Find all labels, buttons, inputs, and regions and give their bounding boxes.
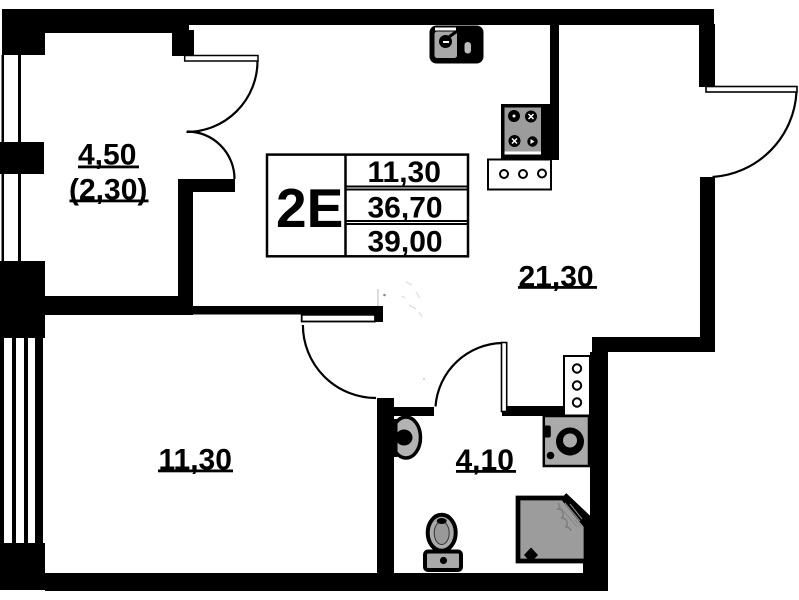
svg-text:2E: 2E bbox=[276, 177, 343, 239]
svg-text:11,30: 11,30 bbox=[368, 156, 441, 189]
svg-text:36,70: 36,70 bbox=[368, 192, 443, 225]
svg-text:39,00: 39,00 bbox=[368, 226, 443, 259]
